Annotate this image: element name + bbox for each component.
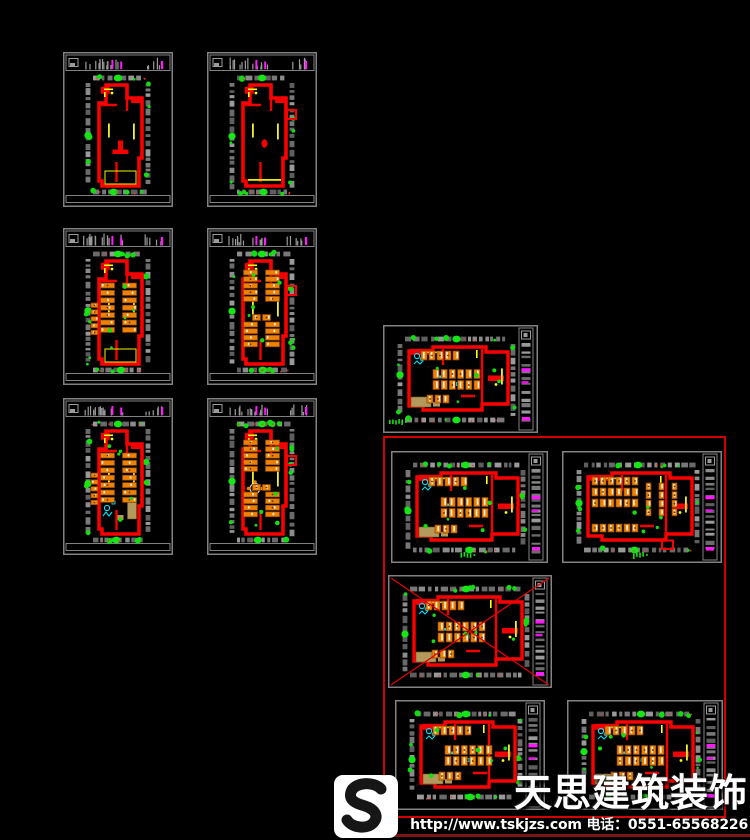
floor-plan-drawing-p1[interactable] [63, 52, 173, 207]
s-logo-icon [334, 775, 398, 838]
floor-plan-drawing-p2[interactable] [207, 52, 317, 207]
watermark-text-block: 天思建筑装饰 http://www.tskjzs.com 电话：0551-655… [410, 774, 748, 834]
floor-plan-drawing-l1[interactable] [383, 325, 538, 433]
selection-rectangle [383, 436, 726, 818]
floor-plan-drawing-p4[interactable] [207, 228, 317, 385]
floor-plan-drawing-p6[interactable] [207, 398, 317, 555]
watermark-contact-text: http://www.tskjzs.com 电话：0551-65568226 [410, 817, 748, 834]
cad-canvas[interactable]: 天思建筑装饰 http://www.tskjzs.com 电话：0551-655… [0, 0, 750, 840]
watermark: 天思建筑装饰 http://www.tskjzs.com 电话：0551-655… [334, 774, 748, 838]
watermark-brand-text: 天思建筑装饰 [514, 774, 748, 814]
watermark-logo [334, 775, 398, 838]
floor-plan-drawing-p5[interactable] [63, 398, 173, 555]
floor-plan-drawing-p3[interactable] [63, 228, 173, 385]
